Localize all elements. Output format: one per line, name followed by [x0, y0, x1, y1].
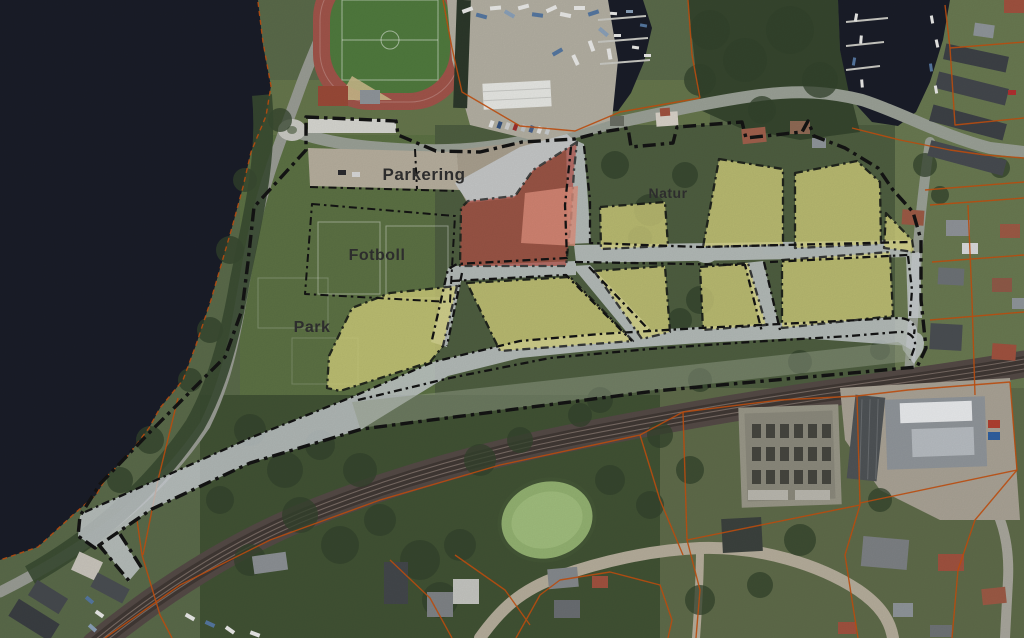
photo-grain — [0, 0, 1024, 638]
site-plan-map: Parkering Fotboll Park Natur — [0, 0, 1024, 638]
aerial-plan-canvas: Parkering Fotboll Park Natur — [0, 0, 1024, 638]
